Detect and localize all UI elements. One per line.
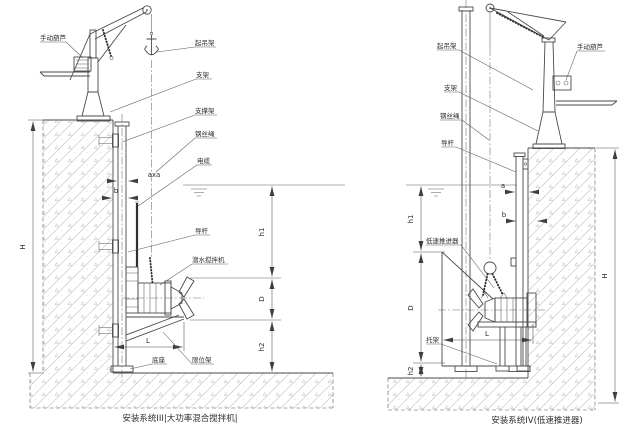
- water-level: [183, 185, 345, 196]
- callout-limit-frame: 限位架: [163, 332, 214, 364]
- callout-lifting-frame: 起吊架: [157, 39, 216, 52]
- hoist-handle: [40, 72, 90, 76]
- dim-h2: h2: [407, 367, 415, 376]
- dim-H: H: [19, 244, 27, 249]
- label-support-bracket: 支撑架: [195, 106, 215, 115]
- guide-rail: [509, 153, 530, 372]
- right-caption: 安装系统IV(低速推进器): [491, 415, 582, 426]
- callout-lifting-frame: 起吊架: [437, 42, 533, 90]
- callout-cable: 电缆: [138, 156, 212, 206]
- callout-support: 支架: [110, 70, 212, 112]
- dim-H: H: [601, 273, 609, 278]
- crane-pedestal: [536, 112, 562, 144]
- label-wire-rope: 钢丝绳: [440, 111, 460, 120]
- label-support: 支架: [444, 83, 458, 92]
- dim-a: a: [501, 182, 505, 190]
- submersible-mixer: [122, 267, 281, 320]
- mixer-blade: [179, 299, 194, 319]
- callout-wire-rope: 钢丝绳: [440, 111, 489, 140]
- callout-bracket: 托架: [426, 335, 497, 364]
- label-lifting-frame: 起吊架: [195, 39, 215, 47]
- dim-b: b: [502, 211, 507, 219]
- lifting-pole: [455, 0, 477, 378]
- dim-h1: h1: [258, 228, 266, 237]
- label-cable: 电缆: [197, 156, 211, 165]
- hoist-handle: [556, 101, 617, 105]
- dim-h1: h1: [407, 215, 415, 224]
- lifting-ball: [484, 262, 496, 274]
- label-lifting-frame: 起吊架: [437, 42, 457, 50]
- right-diagram: H h1 D h2 L a b 起吊架: [388, 0, 619, 426]
- label-limit-frame: 限位架: [192, 355, 212, 364]
- concrete-wall-floor: [30, 120, 333, 408]
- floor-bracket: [442, 252, 536, 371]
- label-base: 底座: [152, 355, 166, 364]
- label-manual-hoist: 手动葫芦: [40, 33, 67, 42]
- callout-guide-rod: 导杆: [441, 138, 516, 172]
- limit-frame: [126, 315, 184, 341]
- callout-wire-rope: 钢丝绳: [156, 129, 217, 172]
- drawing-canvas: H h1 D h2 L axa b 手动葫芦 起吊架: [0, 0, 620, 434]
- hoist-chain: [103, 30, 111, 56]
- dim-L: L: [146, 337, 150, 345]
- slide-bracket: [126, 267, 138, 313]
- callout-manual-hoist: 手动葫芦: [40, 33, 83, 58]
- label-thruster: 低速推进器: [426, 236, 459, 245]
- label-mixer: 潜水搅拌机: [192, 255, 225, 264]
- callout-support: 支架: [444, 83, 538, 131]
- label-bracket: 托架: [426, 335, 440, 344]
- crane-pedestal: [82, 92, 104, 116]
- callout-base: 底座: [130, 355, 167, 369]
- left-caption: 安装系统III|大功率混合搅拌机|: [122, 413, 237, 424]
- label-wire-rope: 钢丝绳: [195, 129, 215, 138]
- callout-guide-rod: 导杆: [128, 226, 210, 252]
- callout-manual-hoist: 手动葫芦: [566, 42, 605, 80]
- mixer-blade: [179, 277, 194, 297]
- dim-h2: h2: [258, 343, 266, 352]
- manual-hoist-body: [553, 76, 571, 90]
- crane-mast: [90, 30, 96, 58]
- concrete-wall-floor: [388, 148, 595, 410]
- dim-b: b: [114, 187, 119, 195]
- label-guide-rod: 导杆: [195, 226, 209, 235]
- label-support: 支架: [196, 70, 210, 79]
- callout-thruster: 低速推进器: [426, 236, 494, 288]
- left-diagram: H h1 D h2 L axa b 手动葫芦 起吊架: [19, 6, 345, 424]
- label-manual-hoist: 手动葫芦: [577, 42, 604, 51]
- dim-D: D: [258, 296, 266, 301]
- label-guide-rod: 导杆: [441, 138, 455, 147]
- dim-axa: axa: [148, 171, 161, 179]
- anchor-hook-icon: [145, 32, 159, 55]
- dim-L: L: [485, 330, 489, 338]
- crane-column: [88, 58, 98, 92]
- dim-D: D: [407, 305, 415, 310]
- technical-drawing: H h1 D h2 L axa b 手动葫芦 起吊架: [0, 0, 620, 434]
